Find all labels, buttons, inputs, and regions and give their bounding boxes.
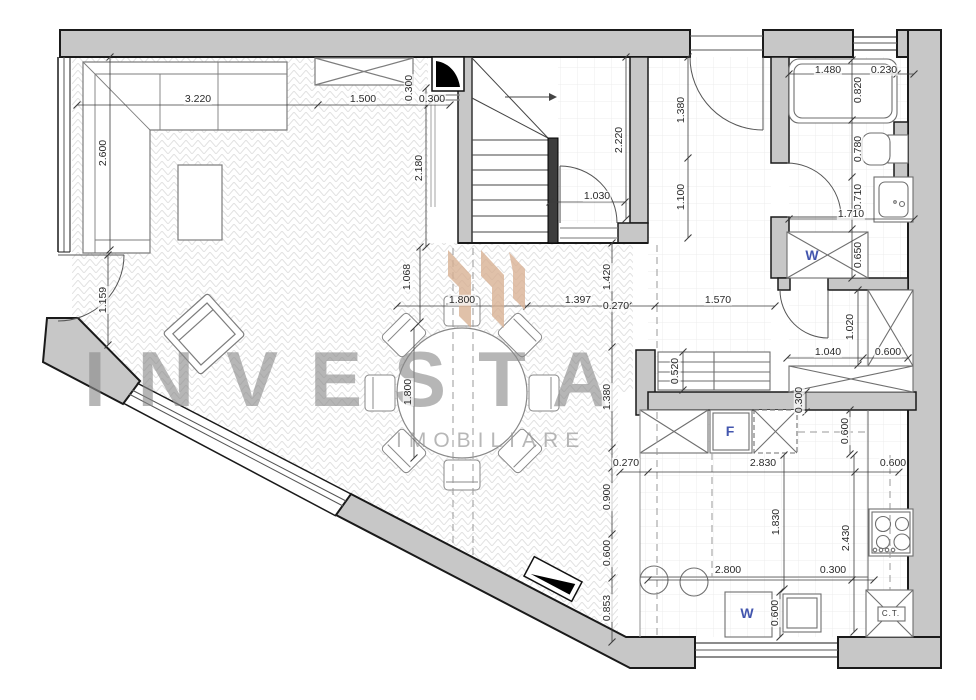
dimension-label: 1.380 bbox=[676, 96, 687, 124]
chair bbox=[444, 460, 480, 490]
entry-threshold bbox=[690, 36, 763, 50]
dimension-label: 0.520 bbox=[670, 357, 681, 385]
dimension-label: 2.800 bbox=[714, 565, 742, 576]
dimension-label: 0.853 bbox=[602, 594, 613, 622]
dimension-label: 1.800 bbox=[448, 295, 476, 306]
dimension-label: 0.900 bbox=[602, 483, 613, 511]
bathroom-window bbox=[853, 37, 897, 50]
upper-cabinet bbox=[640, 410, 708, 453]
toilet-bowl bbox=[862, 133, 890, 165]
watermark-title: INVESTA bbox=[84, 340, 640, 418]
dimension-label: 2.830 bbox=[749, 458, 777, 469]
cabinet-dashed bbox=[754, 410, 797, 453]
dimension-label: 0.600 bbox=[840, 417, 851, 445]
dimension-label: 1.480 bbox=[814, 65, 842, 76]
dimension-label: 1.100 bbox=[676, 183, 687, 211]
dimension-label: 0.300 bbox=[819, 565, 847, 576]
dimension-label: 1.380 bbox=[602, 383, 613, 411]
dimension-label: 1.068 bbox=[402, 263, 413, 291]
dimension-label: 2.180 bbox=[414, 154, 425, 182]
stair-arrowhead bbox=[549, 93, 557, 101]
dimension-label: 0.650 bbox=[853, 241, 864, 269]
dimension-label: 1.040 bbox=[814, 347, 842, 358]
hob bbox=[869, 509, 913, 556]
dimension-label: 0.600 bbox=[602, 539, 613, 567]
dimension-label: 3.220 bbox=[184, 94, 212, 105]
dimension-label: 0.600 bbox=[770, 599, 781, 627]
dimension-label: 1.030 bbox=[583, 191, 611, 202]
dimension-label: 1.800 bbox=[403, 378, 414, 406]
sideboard bbox=[315, 58, 413, 85]
wardrobe-shallow bbox=[789, 366, 913, 392]
dimension-label: 1.570 bbox=[704, 295, 732, 306]
dimension-label: 1.159 bbox=[98, 286, 109, 314]
kitchen-window bbox=[695, 643, 838, 657]
coffee-table bbox=[178, 165, 222, 240]
left-window bbox=[58, 57, 70, 252]
dimension-label: 2.600 bbox=[98, 139, 109, 167]
dimension-label: 0.300 bbox=[418, 94, 446, 105]
stair-floor bbox=[472, 57, 548, 243]
appliance-label: W bbox=[739, 606, 754, 620]
dimension-label: 1.397 bbox=[564, 295, 592, 306]
dimension-label: 1.710 bbox=[837, 209, 865, 220]
dimension-label: 0.230 bbox=[870, 65, 898, 76]
dimension-label: 1.500 bbox=[349, 94, 377, 105]
dimension-label: 0.270 bbox=[612, 458, 640, 469]
dimension-label: 1.020 bbox=[845, 313, 856, 341]
dimension-label: 2.430 bbox=[841, 524, 852, 552]
oven bbox=[783, 594, 821, 632]
dimension-label: 2.220 bbox=[614, 126, 625, 154]
dimension-label: 0.820 bbox=[853, 76, 864, 104]
dimension-label: 0.270 bbox=[602, 301, 630, 312]
dimension-label: 0.600 bbox=[879, 458, 907, 469]
sink-counter bbox=[874, 177, 913, 222]
toilet-tank bbox=[888, 135, 908, 163]
dimension-label: 0.780 bbox=[853, 135, 864, 163]
dimension-label: 0.300 bbox=[404, 74, 415, 102]
watermark-subtitle: IMOBILIARE bbox=[396, 430, 586, 451]
dimension-label: 0.300 bbox=[794, 386, 805, 414]
boiler-label: C.T. bbox=[881, 610, 901, 618]
appliance-label: W bbox=[804, 248, 819, 262]
floor-plan: INVESTA IMOBILIARE 3.2201.5000.3000.3002… bbox=[0, 0, 976, 700]
dimension-label: 1.420 bbox=[602, 263, 613, 291]
dimension-label: 1.830 bbox=[771, 508, 782, 536]
stair-handrail-wall bbox=[548, 138, 558, 243]
dimension-label: 0.600 bbox=[874, 347, 902, 358]
appliance-label: F bbox=[725, 424, 736, 438]
